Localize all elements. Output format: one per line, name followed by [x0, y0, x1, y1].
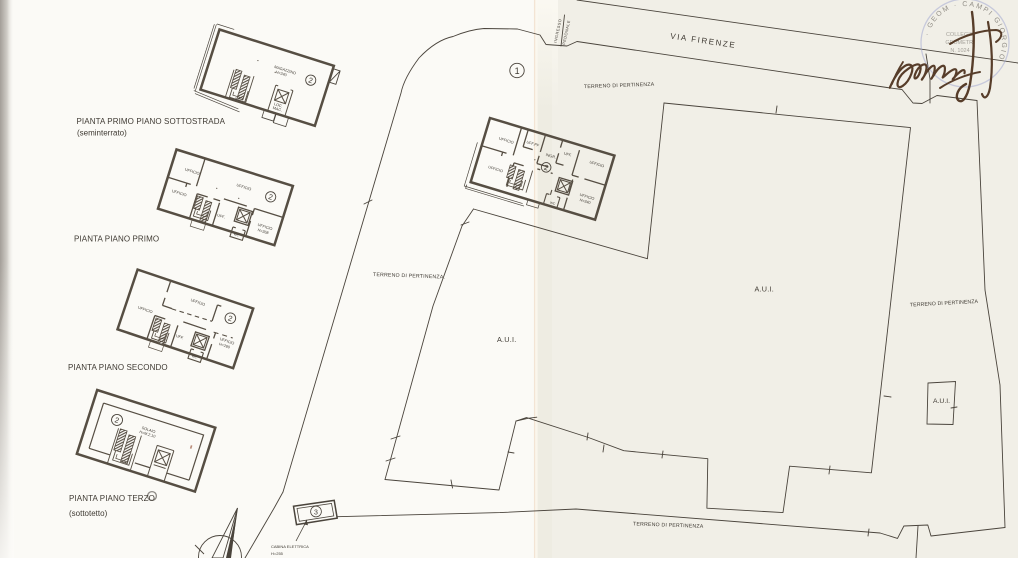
svg-text:A.U.I.: A.U.I. [497, 335, 516, 344]
svg-text:A.U.I.: A.U.I. [933, 398, 950, 405]
svg-text:H=255: H=255 [271, 551, 284, 556]
svg-text:3: 3 [314, 510, 318, 517]
svg-text:1: 1 [515, 66, 520, 76]
svg-text:PIANTA PIANO TERZO: PIANTA PIANO TERZO [69, 494, 155, 503]
svg-text:PIANTA PIANO SECONDO: PIANTA PIANO SECONDO [68, 363, 168, 372]
svg-text:PIANTA PIANO PRIMO: PIANTA PIANO PRIMO [74, 234, 159, 243]
svg-text:PIANTA PRIMO PIANO SOTTOSTRADA: PIANTA PRIMO PIANO SOTTOSTRADA [77, 117, 226, 126]
svg-text:(seminterrato): (seminterrato) [77, 129, 127, 138]
svg-text:N. 1024: N. 1024 [950, 48, 969, 54]
svg-text:CABINA ELETTRICA: CABINA ELETTRICA [271, 544, 309, 549]
svg-text:(sottotetto): (sottotetto) [69, 509, 108, 518]
svg-text:A.U.I.: A.U.I. [755, 285, 774, 294]
